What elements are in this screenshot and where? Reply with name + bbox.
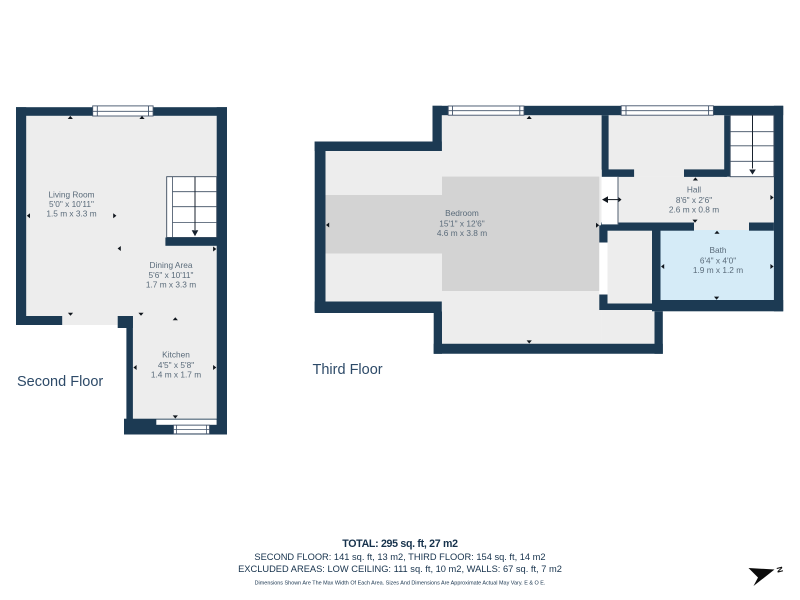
- svg-text:Dining Area: Dining Area: [150, 260, 193, 270]
- svg-text:Bath: Bath: [709, 245, 726, 255]
- svg-text:SECOND FLOOR: 141 sq. ft, 13 m: SECOND FLOOR: 141 sq. ft, 13 m2, THIRD F…: [254, 552, 545, 562]
- svg-text:1.7 m x 3.3 m: 1.7 m x 3.3 m: [146, 280, 196, 290]
- svg-text:Living Room: Living Room: [48, 189, 94, 199]
- svg-text:2.6 m x 0.8 m: 2.6 m x 0.8 m: [669, 204, 719, 214]
- svg-text:EXCLUDED AREAS: LOW CEILING: 1: EXCLUDED AREAS: LOW CEILING: 111 sq. ft,…: [238, 564, 562, 574]
- svg-text:Second Floor: Second Floor: [17, 374, 103, 390]
- svg-text:TOTAL: 295 sq. ft, 27 m2: TOTAL: 295 sq. ft, 27 m2: [342, 538, 458, 550]
- svg-text:Kitchen: Kitchen: [162, 350, 190, 360]
- svg-text:Dimensions Shown Are The Max W: Dimensions Shown Are The Max Width Of Ea…: [255, 580, 546, 586]
- svg-text:Third Floor: Third Floor: [313, 362, 383, 378]
- svg-text:4.6 m x 3.8 m: 4.6 m x 3.8 m: [437, 228, 487, 238]
- svg-text:1.4 m x 1.7 m: 1.4 m x 1.7 m: [151, 369, 201, 379]
- svg-text:Bedroom: Bedroom: [445, 208, 479, 218]
- svg-text:Hall: Hall: [687, 184, 701, 194]
- svg-text:N: N: [775, 566, 785, 574]
- svg-text:1.9 m x 1.2 m: 1.9 m x 1.2 m: [693, 265, 743, 275]
- svg-text:1.5 m x 3.3 m: 1.5 m x 3.3 m: [46, 208, 96, 218]
- svg-text:5'6" x 10'11": 5'6" x 10'11": [149, 270, 194, 280]
